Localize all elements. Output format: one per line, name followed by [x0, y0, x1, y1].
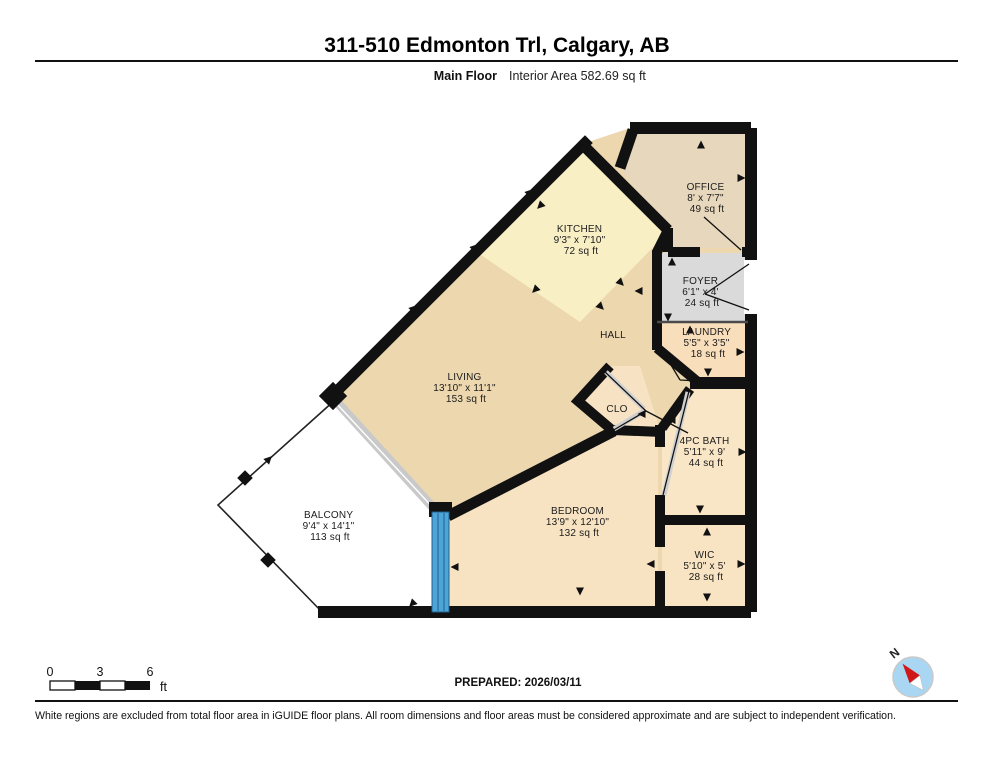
scale-tick-3: 3 [97, 665, 104, 679]
disclaimer-text: White regions are excluded from total fl… [35, 710, 896, 722]
floor-plan-canvas: 311-510 Edmonton Trl, Calgary, AB Main F… [0, 0, 993, 768]
scale-tick-0: 0 [47, 665, 54, 679]
interior-area-label: Interior Area 582.69 sq ft [509, 69, 646, 83]
compass-icon: N [885, 644, 933, 697]
room-fills [218, 128, 751, 612]
sliding-door [432, 512, 449, 612]
room-label-balcony: BALCONY 9'4" x 14'1" 113 sq ft [303, 510, 358, 543]
scale-tick-6: 6 [147, 665, 154, 679]
floor-label: Main Floor [434, 69, 497, 83]
room-label-foyer: FOYER 6'1" x 4' 24 sq ft [682, 276, 721, 309]
scale-unit: ft [160, 680, 167, 694]
scale-bar: 0 3 6 ft [47, 665, 168, 694]
room-label-closet: CLO [606, 404, 627, 415]
prepared-date: PREPARED: 2026/03/11 [455, 677, 583, 689]
entry-opening [744, 260, 759, 314]
page-title: 311-510 Edmonton Trl, Calgary, AB [324, 34, 669, 57]
compass-north-label: N [887, 645, 902, 661]
room-label-office: OFFICE 8' x 7'7" 49 sq ft [687, 182, 728, 215]
room-label-hall: HALL [600, 330, 626, 341]
